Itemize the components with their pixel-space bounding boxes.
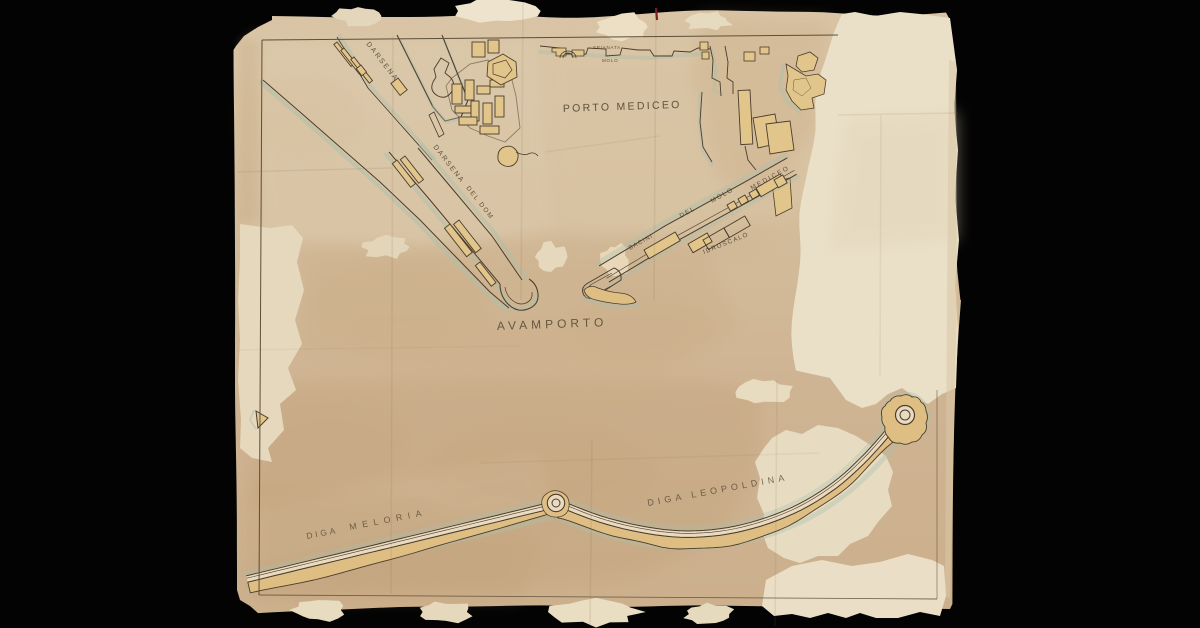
svg-text:MOLO: MOLO <box>602 58 618 63</box>
svg-text:SPIANATA: SPIANATA <box>593 45 621 50</box>
